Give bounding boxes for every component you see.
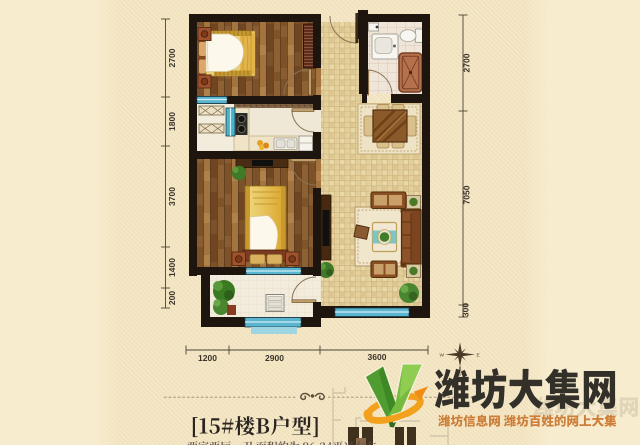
svg-text:1200: 1200 bbox=[198, 353, 217, 363]
svg-text:2700: 2700 bbox=[462, 53, 472, 72]
svg-text:300: 300 bbox=[461, 303, 471, 317]
svg-text:1800: 1800 bbox=[167, 112, 177, 131]
svg-text:2700: 2700 bbox=[167, 48, 177, 67]
svg-text:7050: 7050 bbox=[462, 185, 472, 204]
svg-text:3600: 3600 bbox=[368, 352, 387, 362]
svg-text:200: 200 bbox=[167, 291, 177, 305]
svg-text:W: W bbox=[440, 353, 445, 359]
svg-text:1400: 1400 bbox=[167, 258, 177, 277]
svg-text:2900: 2900 bbox=[265, 353, 284, 363]
svg-text:E: E bbox=[477, 353, 480, 359]
svg-text:3700: 3700 bbox=[167, 187, 177, 206]
